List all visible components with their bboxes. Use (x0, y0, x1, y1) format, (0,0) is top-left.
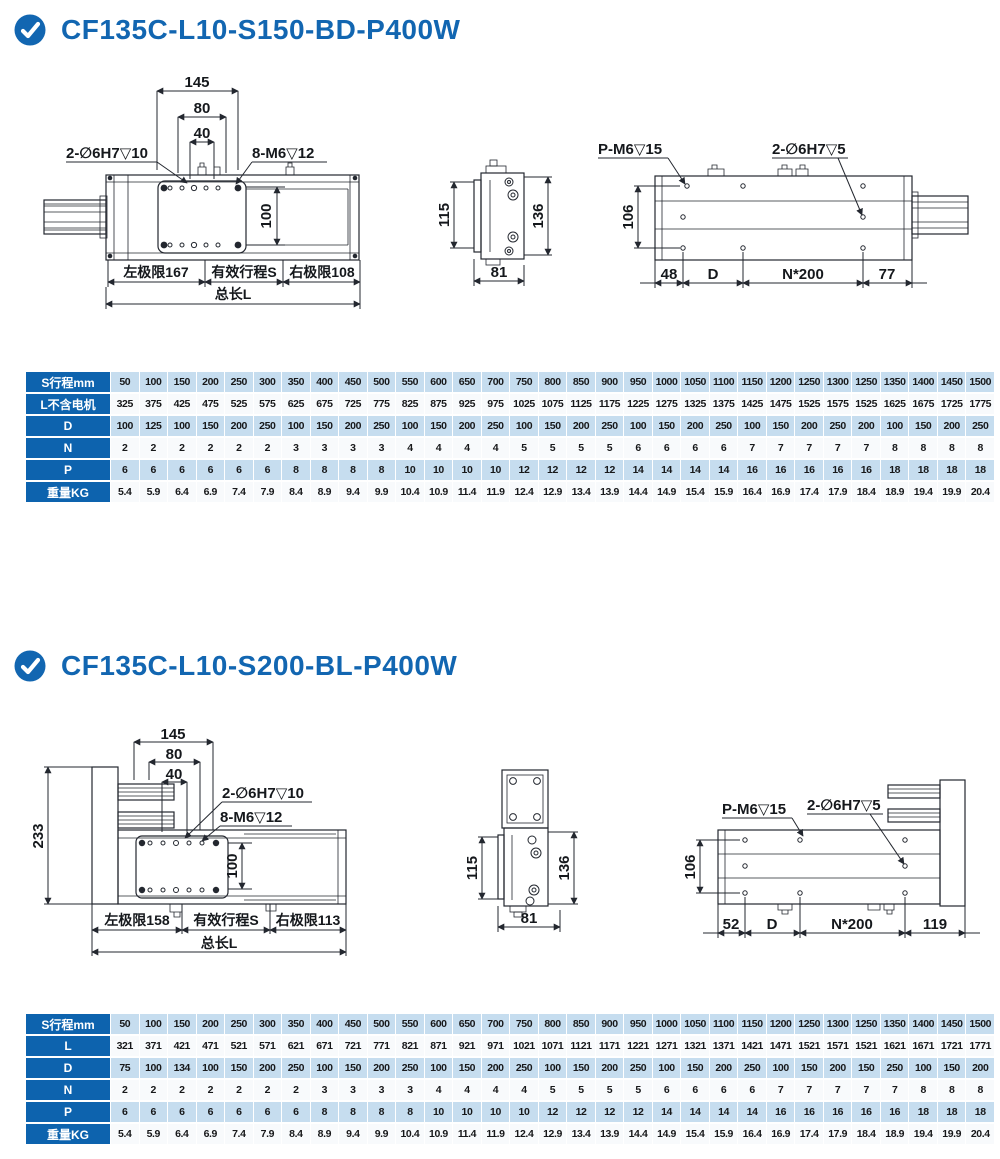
table-cell: 200 (225, 416, 253, 436)
table-cell: 250 (738, 1058, 766, 1078)
table-cell: 16.9 (767, 482, 795, 502)
table-cell: 18.4 (852, 1124, 880, 1144)
table-cell: 3 (311, 438, 339, 458)
table-cell: 671 (311, 1036, 339, 1056)
table-cell: 5 (539, 438, 567, 458)
table-cell: 150 (681, 1058, 709, 1078)
table-cell: 475 (197, 394, 225, 414)
table-cell: 300 (254, 372, 282, 392)
section1-title: CF135C-L10-S150-BD-P400W (14, 14, 460, 46)
table-cell: 2 (225, 438, 253, 458)
table-cell: 8 (282, 460, 310, 480)
table-cell: 7 (795, 1080, 823, 1100)
table-cell: 1050 (681, 1014, 709, 1034)
row-header: 重量KG (26, 1124, 110, 1144)
table-cell: 1350 (881, 1014, 909, 1034)
table-cell: 1621 (881, 1036, 909, 1056)
table-cell: 600 (425, 372, 453, 392)
table-row: D100125100150200250100150200250100150200… (26, 416, 994, 436)
table-cell: 14 (624, 460, 652, 480)
table-cell: 1150 (738, 372, 766, 392)
table-cell: 11.4 (453, 482, 481, 502)
table-cell: 250 (966, 416, 994, 436)
screw-callout: 8-M6▽12 (220, 809, 282, 826)
dim-label: 81 (491, 264, 508, 281)
table-cell: 721 (339, 1036, 367, 1056)
right-limit-label: 右极限108 (288, 264, 355, 280)
table-cell: 5 (567, 1080, 595, 1100)
table-cell: 150 (197, 416, 225, 436)
table-cell: 800 (539, 1014, 567, 1034)
hole-callout: 2-∅6H7▽10 (66, 145, 148, 162)
table-cell: 750 (510, 372, 538, 392)
table-cell: 1071 (539, 1036, 567, 1056)
table-cell: 18.9 (881, 1124, 909, 1144)
screw-callout: 8-M6▽12 (252, 145, 314, 162)
table-cell: 2 (254, 1080, 282, 1100)
table-cell: 13.9 (596, 482, 624, 502)
table-cell: 400 (311, 372, 339, 392)
total-length-label: 总长L (215, 286, 252, 302)
table-cell: 8 (966, 1080, 994, 1100)
dim-label: 145 (184, 74, 209, 91)
table-cell: 825 (396, 394, 424, 414)
dim-label: 233 (30, 823, 47, 848)
table-cell: 10.4 (396, 1124, 424, 1144)
s2-end-dimensions: 115 136 81 (464, 832, 578, 932)
table-cell: 1350 (881, 372, 909, 392)
table-cell: 100 (140, 1014, 168, 1034)
table-cell: 4 (396, 438, 424, 458)
s1-bottom-view-drawing: P-M6▽15 2-∅6H7▽5 106 48 D N*200 77 (590, 130, 1000, 310)
table-cell: 16 (824, 460, 852, 480)
table-cell: 150 (311, 416, 339, 436)
table-cell: 10 (425, 460, 453, 480)
s1-end-body (474, 160, 524, 265)
table-cell: 250 (824, 416, 852, 436)
dim-label: 40 (194, 125, 211, 142)
table-cell: 4 (425, 1080, 453, 1100)
table-cell: 14 (653, 1102, 681, 1122)
stroke-label: 有效行程S (193, 912, 258, 928)
section2-title: CF135C-L10-S200-BL-P400W (14, 650, 457, 682)
table-cell: 1771 (966, 1036, 994, 1056)
table-cell: 100 (425, 1058, 453, 1078)
table-cell: 1225 (624, 394, 652, 414)
table-cell: 4 (453, 1080, 481, 1100)
s1-top-view-drawing: 145 80 40 2-∅6H7▽10 8-M6▽12 100 左极限167 有… (30, 75, 400, 315)
table-cell: 300 (254, 1014, 282, 1034)
table-cell: 1250 (795, 1014, 823, 1034)
table-row: S行程mm50100150200250300350400450500550600… (26, 1014, 994, 1034)
table-cell: 10 (510, 1102, 538, 1122)
table-cell: 1500 (966, 372, 994, 392)
table-cell: 6.9 (197, 1124, 225, 1144)
table-cell: 200 (795, 416, 823, 436)
table-cell: 1421 (738, 1036, 766, 1056)
right-limit-label: 右极限113 (275, 912, 341, 928)
table-cell: 16 (881, 1102, 909, 1122)
table-cell: 621 (282, 1036, 310, 1056)
table-cell: 10.9 (425, 1124, 453, 1144)
table-cell: 20.4 (966, 1124, 994, 1144)
row-header: N (26, 438, 110, 458)
table-cell: 6.4 (168, 482, 196, 502)
table-cell: 150 (767, 416, 795, 436)
table-cell: 700 (482, 372, 510, 392)
table-cell: 1450 (938, 372, 966, 392)
pm6-callout: P-M6▽15 (722, 801, 786, 818)
table-cell: 10.4 (396, 482, 424, 502)
table-cell: 3 (339, 438, 367, 458)
table-cell: 9.4 (339, 482, 367, 502)
table-cell: 150 (168, 372, 196, 392)
table-cell: 550 (396, 1014, 424, 1034)
table-cell: 14.4 (624, 482, 652, 502)
table-cell: 150 (795, 1058, 823, 1078)
table-cell: 15.9 (710, 482, 738, 502)
table-cell: 200 (710, 1058, 738, 1078)
table-cell: 950 (624, 1014, 652, 1034)
table-cell: 1221 (624, 1036, 652, 1056)
table-cell: 16 (824, 1102, 852, 1122)
dim-label: 145 (160, 726, 185, 743)
dim-label: 100 (224, 853, 241, 878)
table-cell: 700 (482, 1014, 510, 1034)
s1-bottom-dimensions: P-M6▽15 2-∅6H7▽5 106 48 D N*200 77 (598, 141, 927, 288)
table-cell: 150 (339, 1058, 367, 1078)
table-cell: 3 (368, 438, 396, 458)
table-cell: 450 (339, 372, 367, 392)
table-cell: 18.4 (852, 482, 880, 502)
table-cell: 575 (254, 394, 282, 414)
table-cell: 14 (681, 460, 709, 480)
table-cell: 4 (482, 1080, 510, 1100)
table-cell: 2 (111, 438, 139, 458)
table-cell: 1471 (767, 1036, 795, 1056)
table-cell: 16 (852, 1102, 880, 1122)
dim-label: 52 (723, 916, 740, 933)
table-cell: 17.4 (795, 482, 823, 502)
dim-label: 106 (620, 204, 637, 229)
table-cell: 5 (567, 438, 595, 458)
table-row: L不含电机32537542547552557562567572577582587… (26, 394, 994, 414)
table-cell: 6 (225, 1102, 253, 1122)
table-cell: 10.9 (425, 482, 453, 502)
dim-label: 115 (436, 203, 453, 227)
s1-top-body (44, 163, 359, 260)
table-cell: 7 (881, 1080, 909, 1100)
dim-label: 81 (521, 910, 538, 927)
table-cell: 1100 (710, 1014, 738, 1034)
row-header: S行程mm (26, 1014, 110, 1034)
table-cell: 1500 (966, 1014, 994, 1034)
table-cell: 1321 (681, 1036, 709, 1056)
table-row: 重量KG5.45.96.46.97.47.98.48.99.49.910.410… (26, 1124, 994, 1144)
table-cell: 200 (966, 1058, 994, 1078)
check-circle-icon (14, 650, 46, 682)
table-cell: 14 (710, 460, 738, 480)
table-cell: 525 (225, 394, 253, 414)
table-cell: 1100 (710, 372, 738, 392)
table-cell: 250 (225, 372, 253, 392)
table-cell: 1000 (653, 372, 681, 392)
table-cell: 450 (339, 1014, 367, 1034)
table-cell: 1725 (938, 394, 966, 414)
table-cell: 250 (510, 1058, 538, 1078)
table-cell: 500 (368, 1014, 396, 1034)
dim-label: 136 (530, 203, 547, 228)
table-cell: 6 (710, 1080, 738, 1100)
table-cell: 1250 (795, 372, 823, 392)
row-header: D (26, 1058, 110, 1078)
table-cell: 200 (339, 416, 367, 436)
table-cell: 7 (852, 1080, 880, 1100)
table-cell: 18 (909, 460, 937, 480)
table-cell: 18 (966, 460, 994, 480)
table-cell: 971 (482, 1036, 510, 1056)
table-cell: 8 (938, 1080, 966, 1100)
table-cell: 100 (767, 1058, 795, 1078)
dim-label: D (708, 266, 719, 283)
model-name: CF135C-L10-S150-BD-P400W (61, 14, 460, 46)
s2-bottom-dimensions: P-M6▽15 2-∅6H7▽5 106 52 D N*200 119 (682, 797, 980, 938)
table-cell: 2 (140, 438, 168, 458)
table-cell: 2 (197, 1080, 225, 1100)
datasheet-page: CF135C-L10-S150-BD-P400W 145 80 (0, 0, 1000, 1159)
table-cell: 200 (567, 416, 595, 436)
table-cell: 100 (738, 416, 766, 436)
dim-label: 100 (258, 203, 275, 228)
dim-label: D (767, 916, 778, 933)
table-cell: 14 (681, 1102, 709, 1122)
table-cell: 100 (510, 416, 538, 436)
table-cell: 17.4 (795, 1124, 823, 1144)
dim-label: 77 (879, 266, 896, 283)
table-cell: 4 (453, 438, 481, 458)
row-header: P (26, 1102, 110, 1122)
table-cell: 16 (738, 460, 766, 480)
table-cell: 18 (938, 460, 966, 480)
table-cell: 2 (282, 1080, 310, 1100)
table-cell: 5 (596, 1080, 624, 1100)
table-row: D751001341001502002501001502002501001502… (26, 1058, 994, 1078)
table-cell: 100 (140, 372, 168, 392)
table-cell: 1671 (909, 1036, 937, 1056)
table-cell: 11.4 (453, 1124, 481, 1144)
table-cell: 13.9 (596, 1124, 624, 1144)
table-cell: 150 (653, 416, 681, 436)
table-cell: 421 (168, 1036, 196, 1056)
table-cell: 100 (311, 1058, 339, 1078)
table-cell: 875 (425, 394, 453, 414)
table-cell: 14 (653, 460, 681, 480)
table-cell: 16.4 (738, 482, 766, 502)
table-cell: 7 (795, 438, 823, 458)
table-cell: 12.4 (510, 482, 538, 502)
row-header: S行程mm (26, 372, 110, 392)
table-cell: 1150 (738, 1014, 766, 1034)
hole-callout: 2-∅6H7▽10 (222, 785, 304, 802)
table-cell: 100 (396, 416, 424, 436)
table-cell: 250 (225, 1014, 253, 1034)
table-cell: 1571 (824, 1036, 852, 1056)
model-name: CF135C-L10-S200-BL-P400W (61, 650, 457, 682)
table-cell: 100 (653, 1058, 681, 1078)
table-cell: 650 (453, 372, 481, 392)
table-cell: 675 (311, 394, 339, 414)
s1-end-view-drawing: 115 136 81 (430, 140, 610, 318)
table-cell: 850 (567, 372, 595, 392)
table-cell: 8 (311, 460, 339, 480)
table-row: N2222222333344445555666677777888 (26, 1080, 994, 1100)
table-cell: 1775 (966, 394, 994, 414)
table-cell: 750 (510, 1014, 538, 1034)
table-cell: 375 (140, 394, 168, 414)
table-cell: 8.9 (311, 482, 339, 502)
table-cell: 1271 (653, 1036, 681, 1056)
table-cell: 1450 (938, 1014, 966, 1034)
stroke-label: 有效行程S (211, 264, 276, 280)
table-cell: 350 (282, 372, 310, 392)
table-cell: 200 (852, 416, 880, 436)
table-cell: 150 (225, 1058, 253, 1078)
s1-end-dimensions: 115 136 81 (436, 177, 552, 286)
table-cell: 10 (425, 1102, 453, 1122)
table-cell: 150 (453, 1058, 481, 1078)
table-cell: 321 (111, 1036, 139, 1056)
table-cell: 14.4 (624, 1124, 652, 1144)
table-cell: 5.9 (140, 482, 168, 502)
table-cell: 18.9 (881, 482, 909, 502)
table-cell: 6 (282, 1102, 310, 1122)
table-cell: 5 (624, 1080, 652, 1100)
table-cell: 7.9 (254, 1124, 282, 1144)
table-cell: 1721 (938, 1036, 966, 1056)
table-cell: 5 (510, 438, 538, 458)
table-cell: 7 (852, 438, 880, 458)
table-cell: 950 (624, 372, 652, 392)
dim-label: 80 (166, 746, 183, 763)
table-cell: 250 (482, 416, 510, 436)
table-cell: 50 (111, 1014, 139, 1034)
table-cell: 6 (254, 1102, 282, 1122)
table-cell: 3 (368, 1080, 396, 1100)
table-cell: 1625 (881, 394, 909, 414)
table-cell: 3 (311, 1080, 339, 1100)
table-cell: 16 (795, 460, 823, 480)
table-cell: 2 (168, 1080, 196, 1100)
table-cell: 200 (938, 416, 966, 436)
table-cell: 12.9 (539, 1124, 567, 1144)
table-cell: 7 (767, 438, 795, 458)
table-cell: 2 (140, 1080, 168, 1100)
table-cell: 1200 (767, 372, 795, 392)
table-cell: 1050 (681, 372, 709, 392)
table-row: L321371421471521571621671721771821871921… (26, 1036, 994, 1056)
table-cell: 50 (111, 372, 139, 392)
table-cell: 8.9 (311, 1124, 339, 1144)
table-cell: 14 (710, 1102, 738, 1122)
table-cell: 1400 (909, 372, 937, 392)
table-cell: 5.9 (140, 1124, 168, 1144)
table-cell: 3 (339, 1080, 367, 1100)
table-cell: 521 (225, 1036, 253, 1056)
table-cell: 200 (596, 1058, 624, 1078)
table-cell: 6 (168, 460, 196, 480)
table-cell: 550 (396, 372, 424, 392)
table-cell: 100 (168, 416, 196, 436)
table-cell: 1400 (909, 1014, 937, 1034)
table-cell: 200 (681, 416, 709, 436)
table-cell: 12.9 (539, 482, 567, 502)
table-cell: 18 (938, 1102, 966, 1122)
table-cell: 5 (596, 438, 624, 458)
table-cell: 16 (795, 1102, 823, 1122)
table-cell: 11.9 (482, 482, 510, 502)
table-cell: 5 (539, 1080, 567, 1100)
table-cell: 1521 (852, 1036, 880, 1056)
table-row: N2222223333444455556666777778888 (26, 438, 994, 458)
dim-label: 80 (194, 100, 211, 117)
table-cell: 14 (738, 1102, 766, 1122)
table-cell: 20.4 (966, 482, 994, 502)
table-cell: 775 (368, 394, 396, 414)
table-cell: 921 (453, 1036, 481, 1056)
table-cell: 150 (852, 1058, 880, 1078)
table-cell: 100 (282, 416, 310, 436)
table-cell: 7.4 (225, 1124, 253, 1144)
table-cell: 900 (596, 372, 624, 392)
table-cell: 1300 (824, 372, 852, 392)
table-cell: 100 (539, 1058, 567, 1078)
table-cell: 8 (339, 1102, 367, 1122)
dim-label: 48 (661, 266, 678, 283)
table-cell: 100 (197, 1058, 225, 1078)
table-cell: 12 (567, 460, 595, 480)
table-cell: 975 (482, 394, 510, 414)
dim-label: 119 (923, 916, 947, 933)
table-cell: 1575 (824, 394, 852, 414)
table-cell: 19.4 (909, 482, 937, 502)
table-cell: 8 (881, 438, 909, 458)
table-cell: 200 (482, 1058, 510, 1078)
dim-label: 106 (682, 854, 699, 879)
table-cell: 2 (197, 438, 225, 458)
table-cell: 1075 (539, 394, 567, 414)
table-cell: 125 (140, 416, 168, 436)
table-cell: 4 (482, 438, 510, 458)
table-cell: 15.4 (681, 1124, 709, 1144)
table-cell: 16.9 (767, 1124, 795, 1144)
table-cell: 100 (111, 416, 139, 436)
table-cell: 6 (111, 460, 139, 480)
table-cell: 150 (539, 416, 567, 436)
table-cell: 10 (482, 460, 510, 480)
table-cell: 800 (539, 372, 567, 392)
table-cell: 17.9 (824, 1124, 852, 1144)
table-cell: 1525 (852, 394, 880, 414)
table-cell: 75 (111, 1058, 139, 1078)
table-cell: 1521 (795, 1036, 823, 1056)
table-cell: 6 (254, 460, 282, 480)
row-header: D (26, 416, 110, 436)
table-cell: 725 (339, 394, 367, 414)
table-cell: 425 (168, 394, 196, 414)
table-cell: 9.9 (368, 1124, 396, 1144)
s1-bottom-body (655, 165, 968, 260)
table-cell: 200 (453, 416, 481, 436)
